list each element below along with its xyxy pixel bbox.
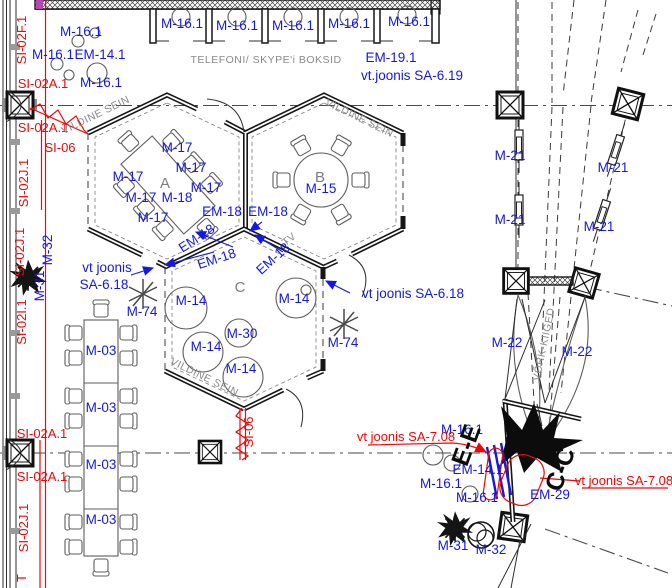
long-table-group [65,300,137,576]
label-m16: M-16.1 [388,14,430,29]
label-m21: M-21 [598,160,629,175]
label-m32: M-32 [476,542,507,557]
label-si02j1: SI-02J.1 [16,159,31,207]
label-m17: M-17 [162,140,193,155]
section-cut [368,403,668,510]
m21-fixture [590,187,615,243]
label-m03: M-03 [86,457,117,472]
room-label-b: B [315,169,325,186]
label-m22: M-22 [492,335,523,350]
label-m03: M-03 [86,400,117,415]
label-m74: M-74 [127,304,158,319]
label-sa619: vt.joonis SA-6.19 [361,68,463,83]
label-m21: M-21 [495,212,526,227]
label-m16: M-16.1 [272,18,314,33]
label-em14: EM-14.1 [74,47,125,62]
label-m16: M-16.1 [32,47,74,62]
label-vtsa708: vt joonis SA-7.08 [575,473,672,488]
label-si02a1: SI-02A.1 [17,426,68,441]
label-si02a1: SI-02A.1 [18,76,69,91]
red-wall-line2 [40,120,42,588]
label-si02j1: SI-02J.1 [16,504,31,552]
label-vildine-sein: VILDINE SEIN [323,97,395,140]
mullion [11,139,20,145]
label-em19: EM-19.1 [365,50,416,65]
label-m31: M-31 [32,271,47,302]
label-vtsa618: vt joonis SA-6.18 [362,286,464,301]
mullion [11,393,20,399]
label-partial: T [14,574,29,582]
labels-gray: TELEFONI/ SKYPE'i BOKSID VILDINE SEIN VI… [60,54,558,399]
label-m14: M-14 [279,291,310,306]
beam [529,277,573,285]
label-em18: EM-18 [248,204,288,219]
label-si06: SI-06 [44,140,75,155]
label-m22: M-22 [562,344,593,359]
label-si06: SI-06 [241,416,256,447]
label-m03: M-03 [86,343,117,358]
label-m16: M-16.1 [456,490,498,505]
label-m16: M-16.1 [80,75,122,90]
label-si02i1: SI-02I.1 [14,299,29,345]
label-sa618: SA-6.18 [80,277,129,292]
label-m16: M-16.1 [216,18,258,33]
label-si02j1: SI-02J.1 [12,228,27,276]
label-m21: M-21 [584,219,615,234]
label-m18: M-18 [162,190,193,205]
label-m31: M-31 [438,538,469,553]
label-m14: M-14 [226,361,257,376]
label-m17: M-17 [176,160,207,175]
label-vtjoonis: vt joonis [82,260,132,275]
left-wall [3,0,16,588]
label-m16: M-16.1 [420,476,462,491]
floor-plan-canvas: M-16.1 M-16.1 EM-14.1 M-16.1 M-16.1 M-16… [0,0,672,588]
label-booths-title: TELEFONI/ SKYPE'i BOKSID [190,54,341,66]
label-m03: M-03 [86,512,117,527]
label-m16: M-16.1 [328,16,370,31]
top-wall-marker [36,0,43,9]
label-m30: M-30 [227,326,258,341]
label-m16: M-16.1 [161,16,203,31]
room-label-c: C [235,279,246,296]
label-vtsa708: vt joonis SA-7.08 [357,429,455,444]
label-em18: EM-18 [202,204,242,219]
label-m17: M-17 [113,169,144,184]
label-m32: M-32 [40,235,55,266]
label-m17: M-17 [138,210,169,225]
label-m21: M-21 [495,148,526,163]
label-m17: M-17 [126,190,157,205]
mullion [11,208,20,214]
label-m16: M-16.1 [60,24,102,39]
label-m17: M-17 [191,180,222,195]
label-m74: M-74 [328,335,359,350]
label-m14: M-14 [191,339,222,354]
label-si02f1: SI-02F.1 [14,16,29,64]
label-si02a1: SI-02A.1 [17,469,68,484]
room-label-a: A [160,175,170,192]
label-m14: M-14 [176,293,207,308]
